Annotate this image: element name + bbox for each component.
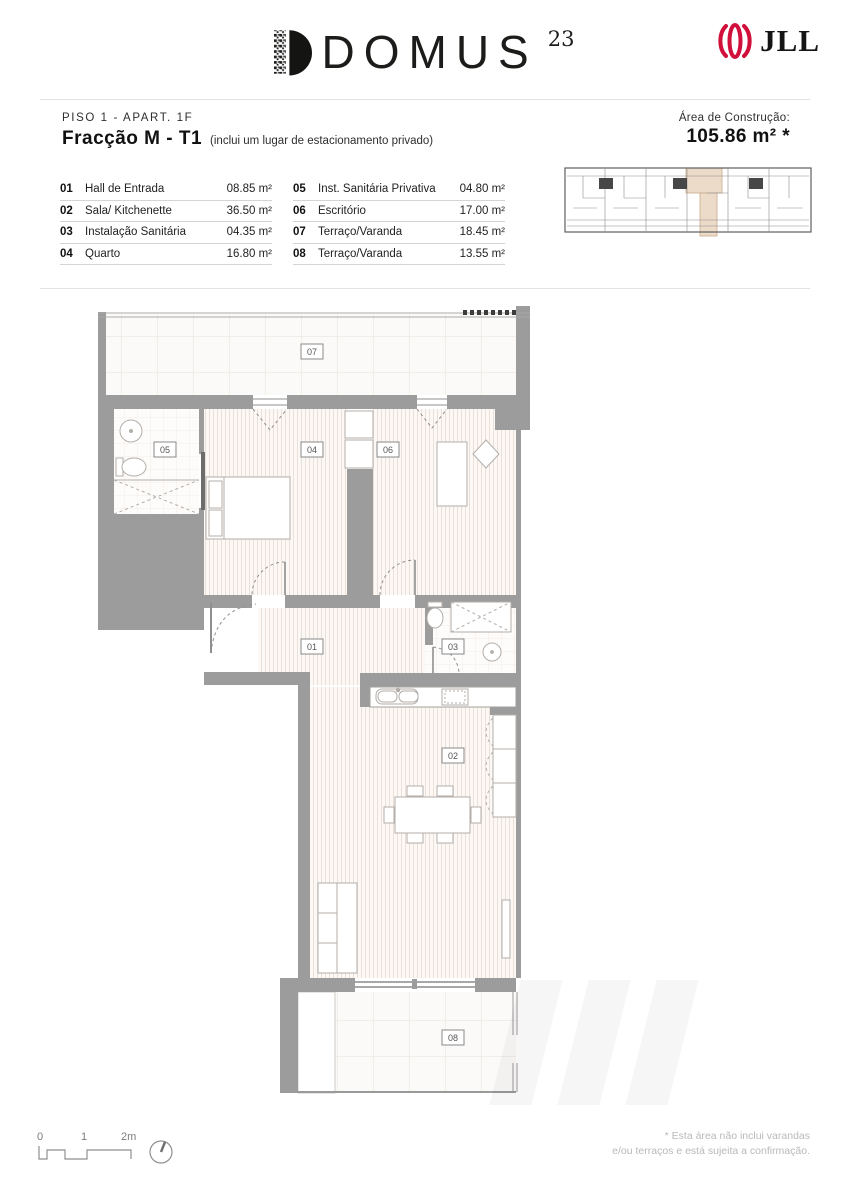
svg-text:01: 01: [307, 642, 317, 652]
scale-0: 0: [37, 1131, 43, 1143]
room-number: 02: [60, 205, 85, 217]
room-area: 04.35 m²: [227, 226, 272, 238]
sliding-door-bathroom-05: [201, 452, 205, 510]
room-label-04: 04: [301, 442, 323, 457]
brand-name: DOMUS: [322, 26, 538, 78]
room-area: 08.85 m²: [227, 183, 272, 195]
table-row: 01 Hall de Entrada 08.85 m²: [60, 179, 272, 201]
scale-1: 1: [81, 1131, 87, 1143]
disclaimer-line-2: e/ou terraços e está sujeita a confirmaç…: [612, 1144, 810, 1159]
room-name: Sala/ Kitchenette: [85, 205, 227, 217]
svg-text:02: 02: [448, 751, 458, 761]
section-divider: [40, 288, 810, 289]
jll-wordmark: JLL: [760, 23, 820, 59]
wardrobe: [345, 411, 373, 468]
area-label: Área de Construção:: [679, 112, 790, 124]
keyplan-core-blocks: [599, 178, 763, 189]
table-row: 06 Escritório 17.00 m²: [293, 201, 505, 223]
room-name: Terraço/Varanda: [318, 226, 460, 238]
room-name: Terraço/Varanda: [318, 248, 460, 260]
radiator: [502, 900, 510, 958]
room-number: 04: [60, 248, 85, 260]
jll-logo: JLL: [715, 20, 820, 62]
room-number: 06: [293, 205, 318, 217]
area-value: 105.86 m² *: [679, 126, 790, 148]
fraction-title: Fracção M - T1: [62, 128, 202, 150]
brand-superscript: 23: [548, 29, 575, 50]
header-divider: [40, 99, 810, 100]
svg-text:07: 07: [307, 347, 317, 357]
scale-bar: 0 1 2m: [33, 1126, 203, 1172]
room-name: Hall de Entrada: [85, 183, 227, 195]
entry-alcove-floor: [204, 600, 258, 672]
room-number: 05: [293, 183, 318, 195]
table-row: 02 Sala/ Kitchenette 36.50 m²: [60, 201, 272, 223]
svg-text:06: 06: [383, 445, 393, 455]
room-label-05: 05: [154, 442, 176, 457]
room-number: 08: [293, 248, 318, 260]
floor-plan: 07 05 04 06 01 03 02 08: [85, 300, 555, 1110]
domus-d-mark-icon: [274, 26, 312, 78]
svg-text:04: 04: [307, 445, 317, 455]
room-name: Instalação Sanitária: [85, 226, 227, 238]
table-row: 08 Terraço/Varanda 13.55 m²: [293, 244, 505, 266]
disclaimer-line-1: * Esta área não inclui varandas: [612, 1129, 810, 1144]
room-area: 17.00 m²: [460, 205, 505, 217]
room-name: Quarto: [85, 248, 227, 260]
room-table-right: 05 Inst. Sanitária Privativa 04.80 m² 06…: [293, 179, 505, 265]
room-area: 13.55 m²: [460, 248, 505, 260]
room-area: 18.45 m²: [460, 226, 505, 238]
brochure-page: DOMUS 23 JLL PISO 1 - APART. 1F Fracção …: [0, 0, 848, 1200]
svg-text:05: 05: [160, 445, 170, 455]
terrace-08-side-area: [298, 992, 335, 1093]
svg-text:08: 08: [448, 1033, 458, 1043]
scale-2m: 2m: [121, 1131, 136, 1143]
room-label-02: 02: [442, 748, 464, 763]
room-area: 04.80 m²: [460, 183, 505, 195]
kitchen-counter: [370, 687, 516, 707]
area-disclaimer: * Esta área não inclui varandas e/ou ter…: [612, 1129, 810, 1159]
room-table-left: 01 Hall de Entrada 08.85 m² 02 Sala/ Kit…: [60, 179, 272, 265]
room-name: Escritório: [318, 205, 460, 217]
sliding-door-terrace-08: [355, 979, 475, 989]
table-row: 05 Inst. Sanitária Privativa 04.80 m²: [293, 179, 505, 201]
bed: [206, 477, 290, 539]
floor-apartment-label: PISO 1 - APART. 1F: [62, 112, 193, 124]
room-label-03: 03: [442, 639, 464, 654]
table-row: 04 Quarto 16.80 m²: [60, 244, 272, 266]
north-arrow-icon: [150, 1141, 172, 1163]
room-label-06: 06: [377, 442, 399, 457]
room-number: 03: [60, 226, 85, 238]
jll-globe-icon: [715, 20, 755, 62]
room-label-01: 01: [301, 639, 323, 654]
construction-area-block: Área de Construção: 105.86 m² *: [679, 112, 790, 148]
svg-text:03: 03: [448, 642, 458, 652]
fraction-note: (inclui um lugar de estacionamento priva…: [210, 135, 433, 147]
table-row: 03 Instalação Sanitária 04.35 m²: [60, 222, 272, 244]
room-name: Inst. Sanitária Privativa: [318, 183, 460, 195]
room-number: 01: [60, 183, 85, 195]
room-area: 16.80 m²: [227, 248, 272, 260]
building-key-plan: [563, 164, 815, 244]
room-label-08: 08: [442, 1030, 464, 1045]
scale-steps: [39, 1146, 131, 1159]
sofa: [318, 883, 357, 973]
room-area: 36.50 m²: [227, 205, 272, 217]
room-number: 07: [293, 226, 318, 238]
table-row: 07 Terraço/Varanda 18.45 m²: [293, 222, 505, 244]
room-label-07: 07: [301, 344, 323, 359]
watermark: [505, 980, 745, 1105]
